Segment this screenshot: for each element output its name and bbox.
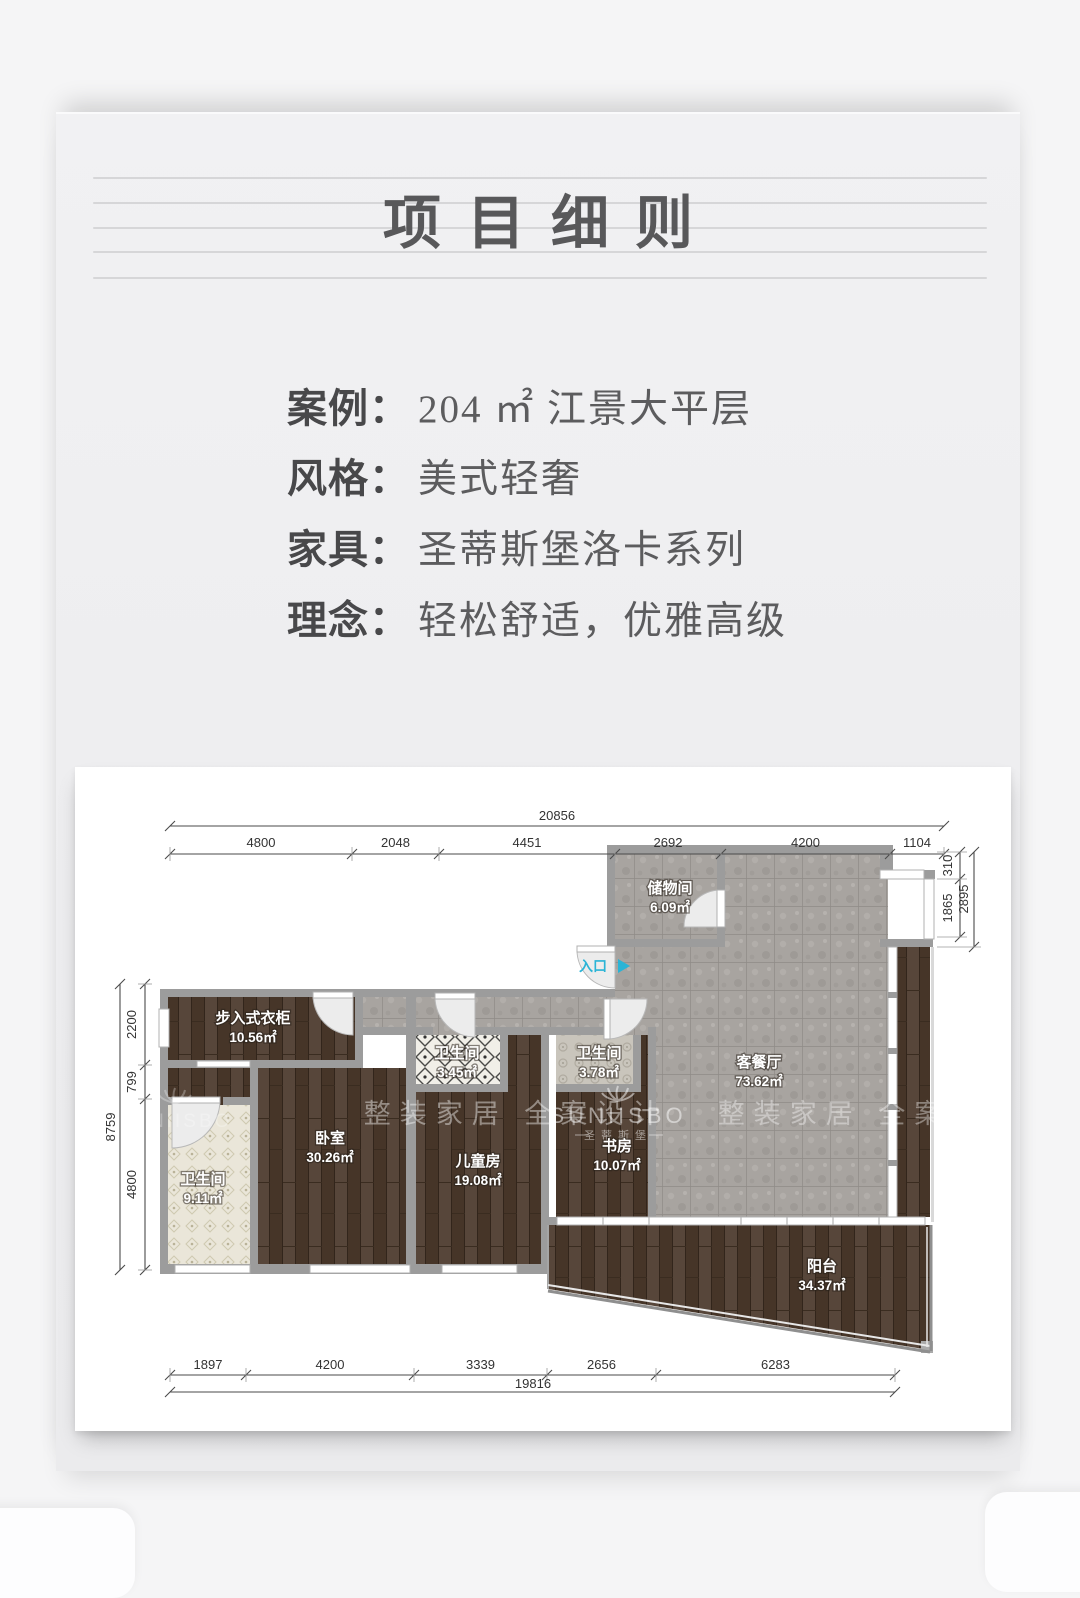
room-area: 19.08㎡ <box>454 1172 502 1188</box>
room-area: 10.07㎡ <box>593 1157 641 1173</box>
dim-top-segment: 1104 <box>903 835 931 850</box>
dim-right-total: 2895 <box>956 885 971 914</box>
info-row-case: 案例： 204 ㎡ 江景大平层 <box>287 376 752 434</box>
dim-top-segment: 2692 <box>654 835 683 850</box>
closet-window <box>159 1009 169 1047</box>
bay-window-top <box>880 870 924 879</box>
info-label-concept: 理念： <box>287 588 410 646</box>
room-area: 73.62㎡ <box>735 1073 783 1089</box>
dim-left-segment: 4800 <box>124 1170 139 1199</box>
info-value-concept: 轻松舒适，优雅高级 <box>418 590 787 646</box>
east-window-strip <box>888 947 897 1217</box>
brand-text-center: SUNIISBO <box>549 1103 686 1128</box>
dim-bottom-segment: 4200 <box>316 1357 345 1372</box>
dim-right-segment: 310 <box>940 855 955 877</box>
room-name: 步入式衣柜 <box>215 1009 290 1027</box>
room-name: 阳台 <box>807 1257 837 1275</box>
dim-top-total: 20856 <box>539 808 575 823</box>
room-name: 卧室 <box>315 1129 345 1147</box>
dim-left-segment: 2200 <box>124 1010 139 1039</box>
info-label-furniture: 家具： <box>287 517 410 575</box>
dim-bottom-segment: 3339 <box>466 1357 495 1372</box>
room-area: 6.09㎡ <box>650 899 690 915</box>
bath-345-door-leaf <box>435 993 475 999</box>
room-area: 9.11㎡ <box>183 1190 223 1206</box>
bay-window-side <box>924 879 934 939</box>
brand-text-left: SUNIISBO <box>118 1111 233 1132</box>
closet-door-leaf <box>313 992 353 998</box>
entrance-label: 入口 <box>579 958 607 974</box>
dim-left-total: 8759 <box>103 1113 118 1142</box>
dim-right-segment: 1865 <box>940 894 955 923</box>
bedroom-south-window <box>310 1265 410 1273</box>
dim-top-segment: 4451 <box>513 835 542 850</box>
page-title: 项目细则 <box>56 194 1020 254</box>
closet-sliding-door <box>197 1061 250 1067</box>
room-area: 10.56㎡ <box>229 1029 277 1045</box>
floorplan-image: 入口 SUNIISBO 整装家居 全案设计 SUNIISBO 圣蒂斯堡 <box>75 767 1011 1431</box>
entry-door-leaf <box>577 946 615 952</box>
info-label-case: 案例： <box>287 376 410 434</box>
room-name: 卫生间 <box>180 1170 225 1188</box>
title-rule-1 <box>93 177 987 179</box>
info-row-furniture: 家具： 圣蒂斯堡洛卡系列 <box>287 517 746 575</box>
room-area: 3.45㎡ <box>437 1064 477 1080</box>
room-area: 34.37㎡ <box>798 1277 846 1293</box>
content-panel: 项目细则 案例： 204 ㎡ 江景大平层 风格： 美式轻奢 家具： 圣蒂斯堡洛卡… <box>56 112 1020 1471</box>
dim-bottom-total: 19816 <box>515 1376 551 1391</box>
info-value-case: 204 ㎡ 江景大平层 <box>418 378 752 434</box>
bath-south-window <box>175 1265 250 1273</box>
watermark-slogan-right: 整装家居 全案设计 <box>718 1099 1011 1129</box>
dim-left-segment: 799 <box>124 1071 139 1093</box>
room-name: 卫生间 <box>576 1044 621 1062</box>
info-label-style: 风格： <box>287 446 410 504</box>
dim-bottom-segment: 1897 <box>194 1357 223 1372</box>
info-value-furniture: 圣蒂斯堡洛卡系列 <box>418 519 746 575</box>
room-name: 书房 <box>602 1137 632 1155</box>
room-name: 储物间 <box>647 879 692 897</box>
room-area: 3.78㎡ <box>579 1064 619 1080</box>
info-row-concept: 理念： 轻松舒适，优雅高级 <box>287 588 787 646</box>
bay-window-floor <box>897 947 930 1217</box>
title-rule-5 <box>93 277 987 279</box>
dim-bottom-segment: 2656 <box>587 1357 616 1372</box>
room-name: 卫生间 <box>434 1044 479 1062</box>
bath-378-door-leaf <box>604 999 610 1039</box>
dim-top-segment: 2048 <box>381 835 410 850</box>
info-value-style: 美式轻奢 <box>418 448 582 504</box>
room-area: 30.26㎡ <box>306 1149 354 1165</box>
dim-bottom-segment: 6283 <box>761 1357 790 1372</box>
dim-top-segment: 4800 <box>247 835 276 850</box>
room-name: 客餐厅 <box>735 1053 781 1071</box>
next-card-peek-right <box>985 1492 1080 1592</box>
floorplan-card: 入口 SUNIISBO 整装家居 全案设计 SUNIISBO 圣蒂斯堡 <box>75 767 1011 1431</box>
kids-south-window <box>442 1265 517 1273</box>
storage-door-leaf <box>717 890 725 927</box>
room-name: 儿童房 <box>454 1152 500 1170</box>
info-row-style: 风格： 美式轻奢 <box>287 446 582 504</box>
next-card-peek-left <box>0 1508 135 1598</box>
dim-top-segment: 4200 <box>791 835 820 850</box>
